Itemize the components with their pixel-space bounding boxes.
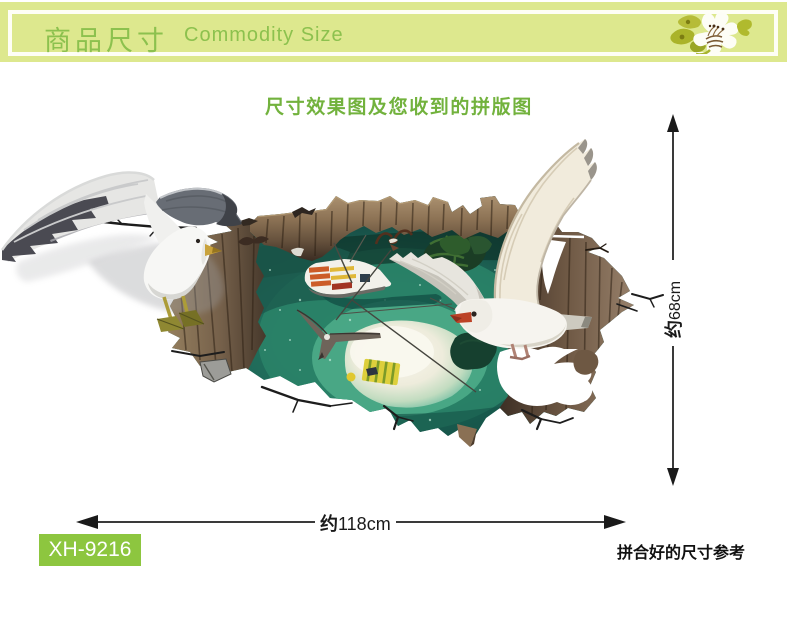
svg-text:约68cm: 约68cm [663, 281, 684, 338]
